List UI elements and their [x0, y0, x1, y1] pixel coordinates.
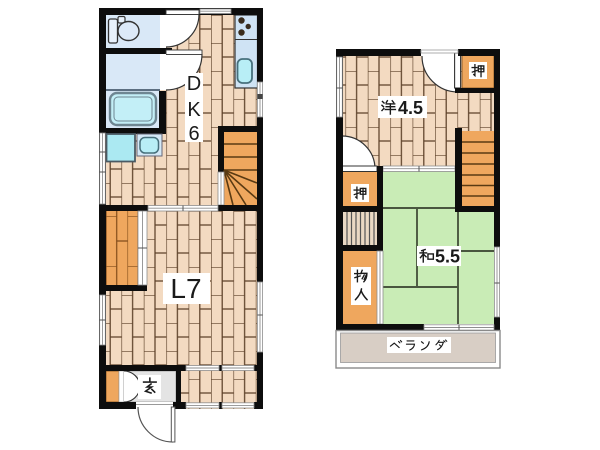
svg-text:L7: L7	[170, 273, 201, 304]
svg-text:5.5: 5.5	[435, 247, 460, 267]
svg-text:K: K	[187, 99, 201, 121]
svg-text:6: 6	[188, 123, 199, 145]
svg-text:D: D	[187, 73, 201, 95]
svg-text:4.5: 4.5	[398, 98, 423, 118]
